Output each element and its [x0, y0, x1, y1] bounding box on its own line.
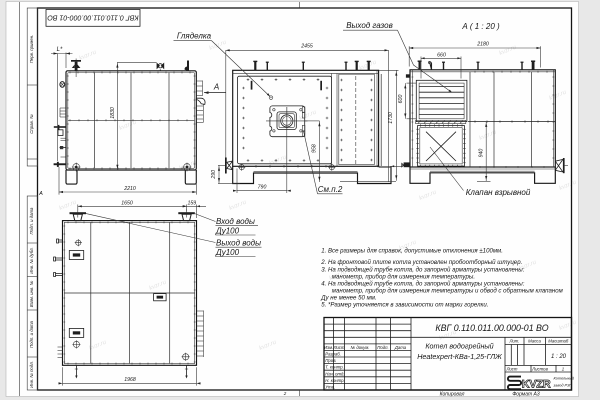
svg-text:Ду100: Ду100 — [215, 248, 240, 257]
svg-text:2: 2 — [283, 391, 287, 396]
svg-text:Ду не менее 50 мм.: Ду не менее 50 мм. — [320, 295, 376, 302]
svg-text:958: 958 — [311, 144, 317, 153]
svg-text:Подп.: Подп. — [377, 345, 388, 350]
svg-text:завод РЗП: завод РЗП — [553, 384, 573, 388]
svg-text:Выход воды: Выход воды — [216, 239, 261, 248]
svg-text:Инв. № подл.: Инв. № подл. — [29, 361, 34, 388]
svg-text:1830: 1830 — [110, 107, 116, 119]
svg-text:Нач. отд.: Нач. отд. — [325, 371, 344, 376]
svg-text:Масштаб: Масштаб — [548, 339, 569, 344]
svg-text:Выход газов: Выход газов — [346, 21, 393, 30]
svg-text:4. На подводящей трубе котла,: 4. На подводящей трубе котла, до запорно… — [321, 280, 525, 287]
svg-text:1730: 1730 — [388, 112, 394, 124]
svg-text:Копировал: Копировал — [440, 391, 465, 397]
svg-text:2180: 2180 — [476, 42, 489, 48]
svg-text:600: 600 — [398, 95, 404, 104]
svg-text:790: 790 — [258, 184, 267, 190]
svg-text:2455: 2455 — [300, 44, 313, 50]
svg-text:Взам. инв. №: Взам. инв. № — [29, 280, 34, 307]
svg-text:2210: 2210 — [123, 186, 136, 192]
svg-text:Гляделка: Гляделка — [177, 31, 212, 40]
svg-text:1650: 1650 — [121, 200, 133, 206]
svg-text:Вход воды: Вход воды — [216, 217, 255, 226]
svg-text:Листов: Листов — [531, 366, 548, 371]
svg-text:А ( 1 : 20 ): А ( 1 : 20 ) — [461, 22, 500, 31]
svg-text:Подп. и дата: Подп. и дата — [29, 320, 34, 348]
svg-text:А: А — [38, 191, 43, 197]
svg-text:Клапан взрывной: Клапан взрывной — [466, 188, 531, 197]
svg-text:290: 290 — [211, 170, 217, 180]
svg-text:KVZR: KVZR — [522, 378, 551, 390]
svg-text:1. Все размеры для справок, до: 1. Все размеры для справок, допустимые о… — [321, 247, 503, 254]
svg-text:Справ. №: Справ. № — [29, 114, 34, 134]
svg-text:№ докум.: № докум. — [351, 345, 370, 350]
svg-text:Лист: Лист — [332, 345, 344, 350]
svg-text:Дата: Дата — [394, 345, 407, 350]
svg-text:1 : 20: 1 : 20 — [551, 354, 567, 360]
svg-text:Масса: Масса — [528, 339, 541, 344]
svg-text:2. На фронтовой плите котла ус: 2. На фронтовой плите котла установлен п… — [320, 259, 522, 266]
svg-text:См.п.2: См.п.2 — [318, 185, 343, 194]
svg-text:Котел водогрейный: Котел водогрейный — [425, 341, 493, 350]
svg-text:Ду100: Ду100 — [215, 227, 240, 236]
svg-text:3. На подводящей трубе котла,: 3. На подводящей трубе котла, до запорно… — [321, 266, 525, 273]
svg-text:660: 660 — [437, 52, 446, 58]
svg-text:КВГ 0.110.011.00.000-01 ВО: КВГ 0.110.011.00.000-01 ВО — [435, 323, 548, 333]
svg-text:L*: L* — [57, 47, 63, 53]
svg-text:Подп. и дата: Подп. и дата — [29, 207, 34, 235]
svg-text:Утв.: Утв. — [325, 385, 335, 390]
svg-text:манометр, прибор для измерения: манометр, прибор для измерения температу… — [332, 288, 564, 295]
svg-text:Формат А3: Формат А3 — [512, 391, 540, 397]
svg-text:Лит.: Лит. — [508, 339, 519, 344]
svg-text:Heatexpert-КВа-1,25-ГЛЖ: Heatexpert-КВа-1,25-ГЛЖ — [417, 352, 502, 361]
svg-text:манометр, прибор для измерения: манометр, прибор для измерения температу… — [332, 273, 475, 280]
svg-text:КВГ 0.110.011.00.000-01 ВО: КВГ 0.110.011.00.000-01 ВО — [47, 14, 139, 22]
svg-text:1968: 1968 — [124, 377, 136, 383]
svg-text:Инв. № дубл.: Инв. № дубл. — [29, 247, 34, 273]
svg-text:Т. контр.: Т. контр. — [325, 365, 344, 370]
svg-text:Н. контр.: Н. контр. — [325, 378, 344, 383]
svg-text:Котельный: Котельный — [554, 377, 576, 381]
svg-text:Перв. примен.: Перв. примен. — [29, 35, 34, 64]
svg-text:Лист: Лист — [505, 366, 517, 371]
svg-text:Пров.: Пров. — [325, 358, 336, 363]
svg-text:159: 159 — [187, 200, 196, 206]
svg-text:Разраб.: Разраб. — [325, 352, 341, 357]
svg-text:Изм.: Изм. — [324, 345, 333, 350]
svg-text:5. *Размер уточняется в зависи: 5. *Размер уточняется в зависимости от м… — [321, 302, 488, 309]
svg-text:А: А — [213, 83, 219, 92]
svg-text:940: 940 — [479, 149, 485, 158]
